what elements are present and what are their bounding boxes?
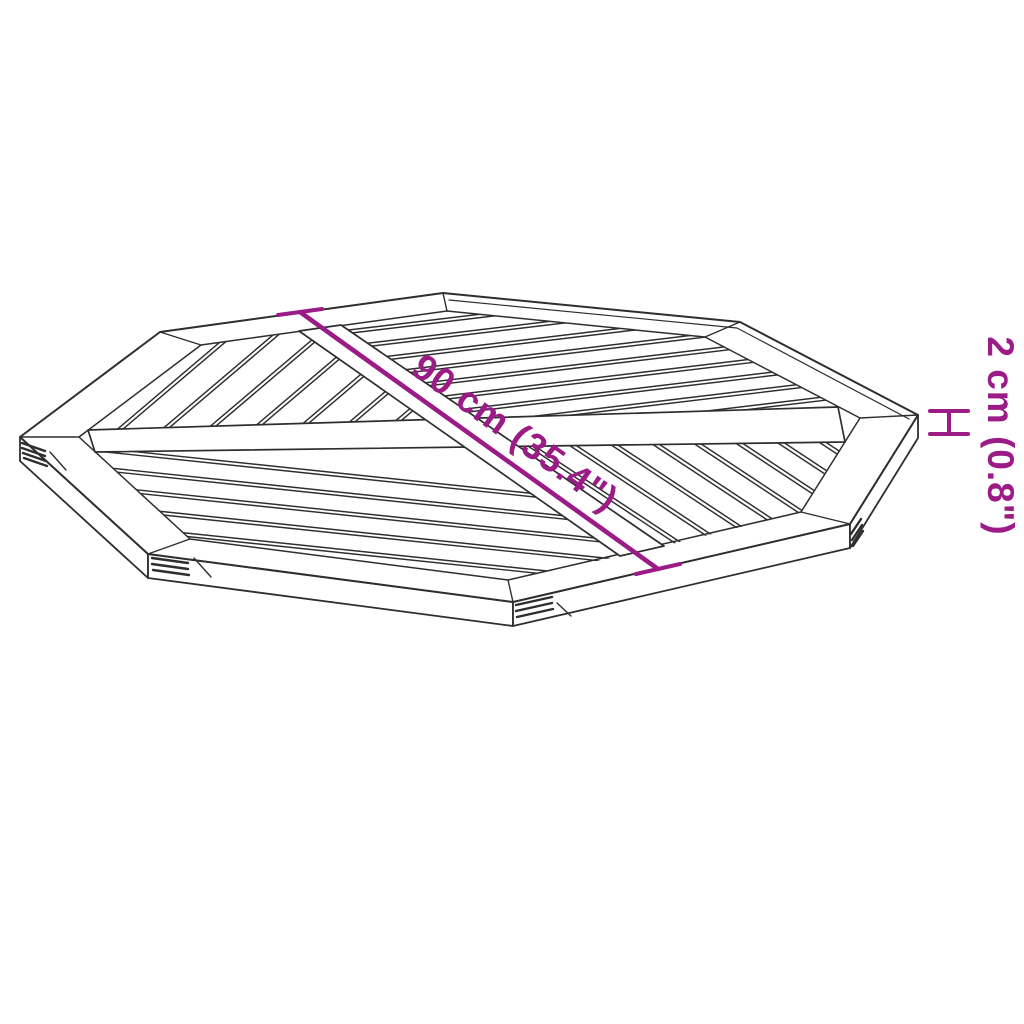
product-dimension-image: 90 cm (35.4") 2 cm (0.8") [0, 0, 1024, 1024]
octagonal-tabletop-diagram: 90 cm (35.4") 2 cm (0.8") [0, 0, 1024, 1024]
thickness-marker-icon [930, 411, 968, 434]
thickness-dimension-label: 2 cm (0.8") [980, 336, 1021, 535]
